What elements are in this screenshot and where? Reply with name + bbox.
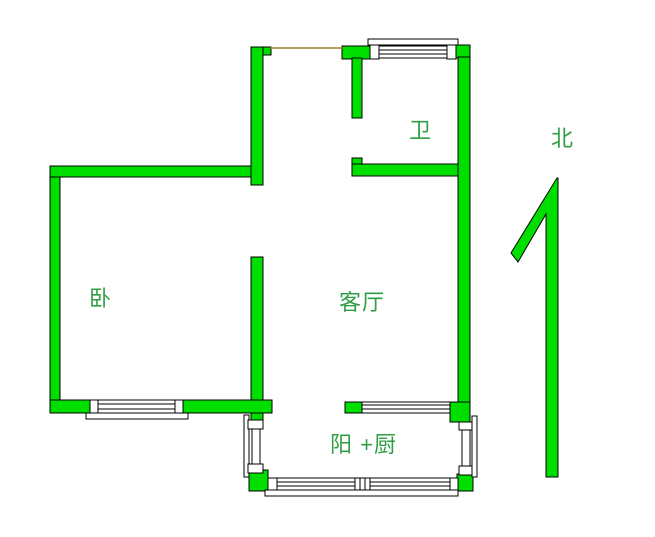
window-sill <box>86 413 188 419</box>
window-post <box>459 422 472 430</box>
window-balcony-right <box>459 416 477 477</box>
wall-hall-left-notch <box>263 47 271 55</box>
window-glass-band <box>362 402 450 413</box>
window-glass-band <box>370 478 450 490</box>
window-bedroom-bottom <box>86 400 188 419</box>
wall-left-exterior <box>50 166 60 413</box>
window-glass-band <box>98 400 175 413</box>
wall-right-exterior <box>458 57 470 422</box>
wall-hall-left <box>251 47 263 185</box>
wall-top-bedroom <box>50 166 263 177</box>
window-post <box>175 400 183 413</box>
wall-bath-bottom <box>352 164 470 176</box>
floor-plan-canvas <box>0 0 655 537</box>
window-post <box>248 420 263 429</box>
window-post <box>370 45 379 59</box>
window-bathroom-top <box>368 39 458 59</box>
bathroom-label: 卫 <box>409 120 432 142</box>
window-post <box>459 466 472 475</box>
wall-balcony-bottom-right-corner <box>457 474 473 491</box>
window-post <box>268 478 277 490</box>
window-sill <box>265 490 458 496</box>
wall-balcony-top-right-corner <box>450 402 470 422</box>
north-label: 北 <box>551 128 573 150</box>
window-glass-band <box>379 46 447 58</box>
window-post <box>447 45 456 59</box>
window-post <box>450 478 458 490</box>
window-sill <box>472 416 477 477</box>
window-balcony-top <box>362 402 450 413</box>
balcony-kitchen-label: 阳 +厨 <box>330 434 397 456</box>
wall-bedroom-livingroom <box>251 257 263 421</box>
window-sill <box>368 39 458 45</box>
window-post <box>90 400 98 413</box>
north-arrow-icon <box>511 178 558 477</box>
bedroom-label: 卧 <box>89 288 112 310</box>
wall-bath-left-upper <box>352 58 362 118</box>
living-room-label: 客厅 <box>339 292 385 314</box>
window-glass-band <box>252 429 260 464</box>
window-glass-band <box>462 430 470 466</box>
window-mullion <box>355 478 370 490</box>
wall-balcony-top-stub <box>345 402 362 413</box>
window-balcony-left <box>244 415 263 477</box>
window-glass-band <box>277 478 355 490</box>
window-post <box>248 464 263 473</box>
wall-bath-top-left-cap <box>342 46 370 59</box>
floor-plan: 卧 客厅 卫 阳 +厨 北 <box>0 0 655 537</box>
window-balcony-bottom <box>265 478 458 496</box>
